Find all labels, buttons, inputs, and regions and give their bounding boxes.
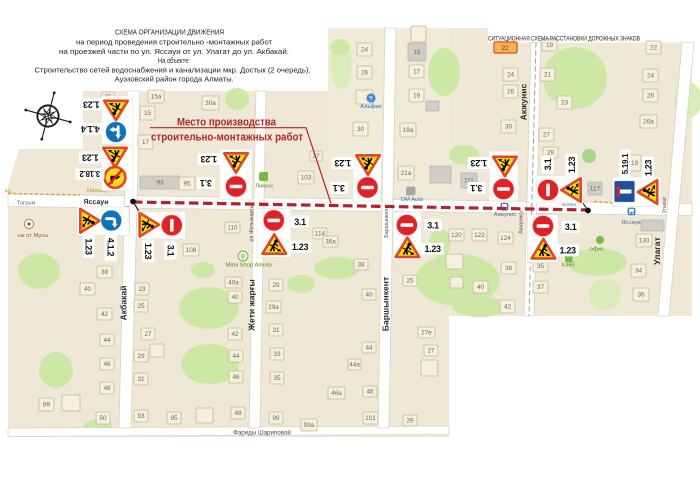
svg-text:36a: 36a [325,239,336,246]
svg-text:СХЕМА ОРГАНИЗАЦИИ ДВИЖЕНИЯ: СХЕМА ОРГАНИЗАЦИИ ДВИЖЕНИЯ [115,28,224,37]
svg-text:15: 15 [144,110,152,117]
svg-text:19: 19 [413,93,421,100]
svg-text:Жети жарғы: Жети жарғы [247,279,257,331]
svg-text:Строительство сетей водоснабже: Строительство сетей водоснабжения и кана… [35,66,311,75]
svg-text:27: 27 [543,132,551,139]
svg-text:108: 108 [186,247,197,254]
svg-text:1.23: 1.23 [471,158,488,168]
svg-text:Акжунису: Акжунису [519,210,525,234]
svg-text:на проезжей части по ул. Яссау: на проезжей части по ул. Яссауи от ул. У… [59,47,289,56]
svg-text:15a: 15a [151,94,162,101]
svg-text:27e: 27e [421,330,432,337]
svg-text:38: 38 [505,265,513,272]
svg-text:31: 31 [272,327,280,334]
svg-text:Место производства: Место производства [177,117,277,129]
svg-text:15: 15 [413,49,421,56]
svg-text:3.1: 3.1 [565,222,577,232]
svg-text:5.19.1: 5.19.1 [621,153,630,174]
svg-text:1.23: 1.23 [643,160,653,177]
svg-text:Акбакай: Акбакай [119,286,129,321]
svg-text:27: 27 [427,348,435,355]
svg-text:офис: офис [590,247,604,253]
svg-text:103: 103 [301,175,312,182]
svg-text:17: 17 [142,139,150,146]
svg-text:117: 117 [590,186,601,193]
svg-text:1.23: 1.23 [292,242,309,252]
svg-text:DM Auto: DM Auto [401,197,423,203]
svg-text:89: 89 [43,402,51,409]
svg-text:99a: 99a [304,422,315,429]
svg-text:1.23: 1.23 [83,99,100,109]
svg-text:95: 95 [183,181,191,188]
svg-text:3.1: 3.1 [165,245,175,257]
svg-text:42: 42 [504,304,512,311]
svg-text:40: 40 [84,286,92,293]
svg-text:1.23: 1.23 [143,243,153,260]
svg-text:3.1: 3.1 [333,183,345,193]
svg-text:17: 17 [413,69,421,76]
svg-text:1.23: 1.23 [84,238,94,255]
svg-text:42: 42 [101,311,109,318]
svg-text:на период проведения строитель: на период проведения строительно -монтаж… [76,37,273,46]
svg-text:19a: 19a [403,127,414,134]
svg-text:1.23: 1.23 [201,154,218,164]
svg-text:33: 33 [273,351,281,358]
svg-text:1.23: 1.23 [567,157,577,174]
svg-text:ык от Мусы: ык от Мусы [18,233,48,239]
svg-text:19: 19 [546,42,554,49]
svg-text:Улагат: Улагат [652,237,662,265]
svg-text:21: 21 [544,72,552,79]
svg-text:130: 130 [639,238,650,245]
svg-text:1.23: 1.23 [424,244,441,254]
svg-text:48: 48 [103,385,111,392]
svg-text:4.1.2: 4.1.2 [105,238,115,257]
svg-text:Акжунис: Акжунис [519,83,529,120]
svg-text:1.23: 1.23 [82,152,99,162]
svg-text:1.23: 1.23 [559,246,576,256]
svg-text:Яссауи: Яссауи [621,220,640,226]
svg-text:4.1.4: 4.1.4 [81,124,100,134]
svg-text:24: 24 [507,72,515,79]
svg-text:95: 95 [170,415,178,422]
svg-text:110: 110 [227,225,238,232]
svg-text:23: 23 [561,100,569,107]
svg-text:29: 29 [272,282,280,289]
svg-text:Mimi Shop Almaty: Mimi Shop Almaty [226,263,272,269]
svg-text:Альфия: Альфия [360,104,381,110]
svg-text:124: 124 [500,235,511,242]
svg-text:Яссауи: Яссауи [83,199,108,206]
svg-text:25: 25 [406,278,414,285]
svg-text:93: 93 [156,180,164,187]
svg-text:⚲: ⚲ [241,254,245,261]
svg-text:3.1: 3.1 [543,158,553,170]
svg-text:26: 26 [361,70,369,77]
svg-text:3.18.2: 3.18.2 [79,169,100,178]
svg-text:22: 22 [650,45,658,52]
svg-text:38: 38 [357,262,365,269]
svg-text:40: 40 [477,284,485,291]
svg-text:46a: 46a [331,390,342,397]
svg-text:Хлеб: Хлеб [561,263,575,269]
svg-text:29a: 29a [268,304,279,311]
svg-text:Тагзым: Тагзым [17,201,36,207]
svg-text:36: 36 [637,292,645,299]
svg-text:Ауэзовский район города Алматы: Ауэзовский район города Алматы. [115,74,234,83]
svg-text:3.1: 3.1 [200,178,212,188]
svg-text:Фариды Шариповой: Фариды Шариповой [233,430,291,437]
svg-text:Баршынкент: Баршынкент [381,277,391,331]
svg-text:25: 25 [137,303,145,310]
svg-text:СИТУАЦИОННАЯ СХЕМА РАССТАНОВКИ: СИТУАЦИОННАЯ СХЕМА РАССТАНОВКИ ДОРОЖНЫХ … [488,35,640,42]
svg-text:Лимон: Лимон [255,184,272,190]
svg-text:30: 30 [357,126,365,133]
svg-text:101: 101 [365,415,376,422]
svg-text:23: 23 [138,286,146,293]
svg-text:24: 24 [361,47,369,54]
svg-text:40: 40 [231,294,239,301]
svg-text:Акжунис: Акжунис [494,212,517,218]
svg-text:44a: 44a [349,362,360,369]
svg-text:93: 93 [137,413,145,420]
svg-text:22: 22 [501,45,509,52]
svg-text:40a: 40a [228,280,239,287]
svg-text:3.1: 3.1 [294,217,306,227]
svg-text:Улагат: Улагат [662,196,668,213]
svg-text:99: 99 [272,415,280,422]
svg-text:44: 44 [103,337,111,344]
svg-text:44: 44 [365,345,373,352]
svg-text:37: 37 [537,284,545,291]
svg-text:1.23: 1.23 [335,158,352,168]
svg-text:На объекте:: На объекте: [158,56,190,65]
svg-text:26: 26 [647,93,655,100]
svg-text:ул Жетыжарғы: ул Жетыжарғы [249,205,255,242]
svg-text:ка..: ка.. [5,189,14,195]
svg-text:₸: ₸ [369,96,373,103]
svg-text:строительно-монтажных работ: строительно-монтажных работ [151,132,304,144]
svg-text:38: 38 [101,269,109,276]
svg-text:26a: 26a [643,119,654,126]
svg-text:27: 27 [144,331,152,338]
svg-text:29: 29 [406,418,414,425]
svg-text:50: 50 [99,415,107,422]
svg-text:24: 24 [647,73,655,80]
svg-text:3.1: 3.1 [470,183,482,193]
svg-text:29: 29 [137,353,145,360]
svg-text:46: 46 [232,374,240,381]
svg-text:48: 48 [234,410,242,417]
svg-text:35: 35 [273,375,281,382]
svg-text:30a: 30a [205,100,216,107]
svg-text:44: 44 [232,353,240,360]
svg-text:26: 26 [507,89,515,96]
svg-text:30: 30 [505,124,513,131]
svg-text:120: 120 [451,232,462,239]
svg-text:19: 19 [631,160,639,167]
svg-text:46: 46 [103,361,111,368]
svg-text:42: 42 [231,331,239,338]
svg-text:31: 31 [137,376,145,383]
svg-text:35: 35 [537,263,545,270]
svg-text:46: 46 [366,389,374,396]
svg-text:Баршынкент: Баршынкент [384,206,390,238]
svg-text:40: 40 [365,292,373,299]
svg-text:3.1: 3.1 [427,220,439,230]
svg-text:122: 122 [474,232,485,239]
svg-text:21a: 21a [401,170,412,177]
svg-text:34: 34 [635,268,643,275]
